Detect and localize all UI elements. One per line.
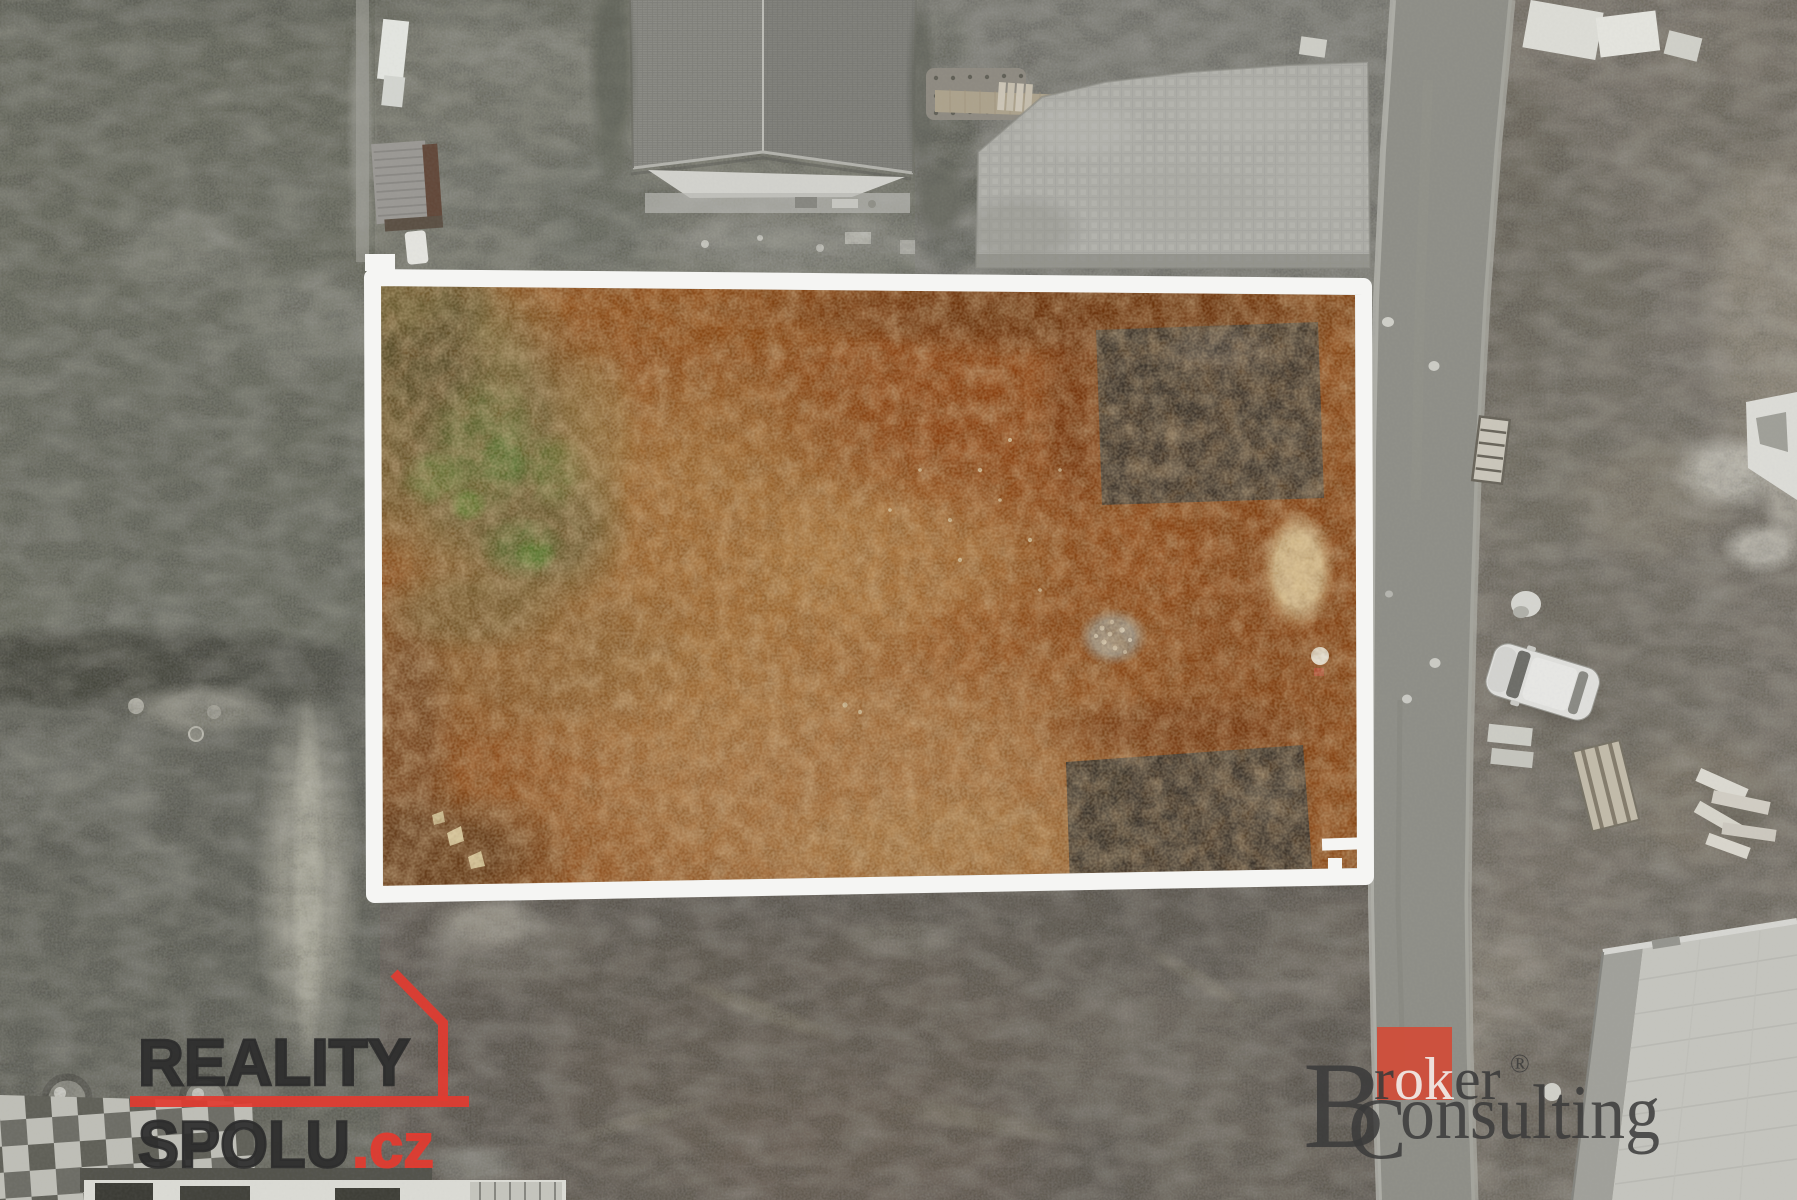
svg-text:.cz: .cz: [352, 1112, 434, 1181]
svg-text:SPOLU: SPOLU: [138, 1107, 350, 1181]
svg-text:C: C: [1348, 1081, 1407, 1178]
svg-text:onsulting: onsulting: [1400, 1069, 1660, 1155]
svg-text:REALITY: REALITY: [138, 1025, 410, 1099]
